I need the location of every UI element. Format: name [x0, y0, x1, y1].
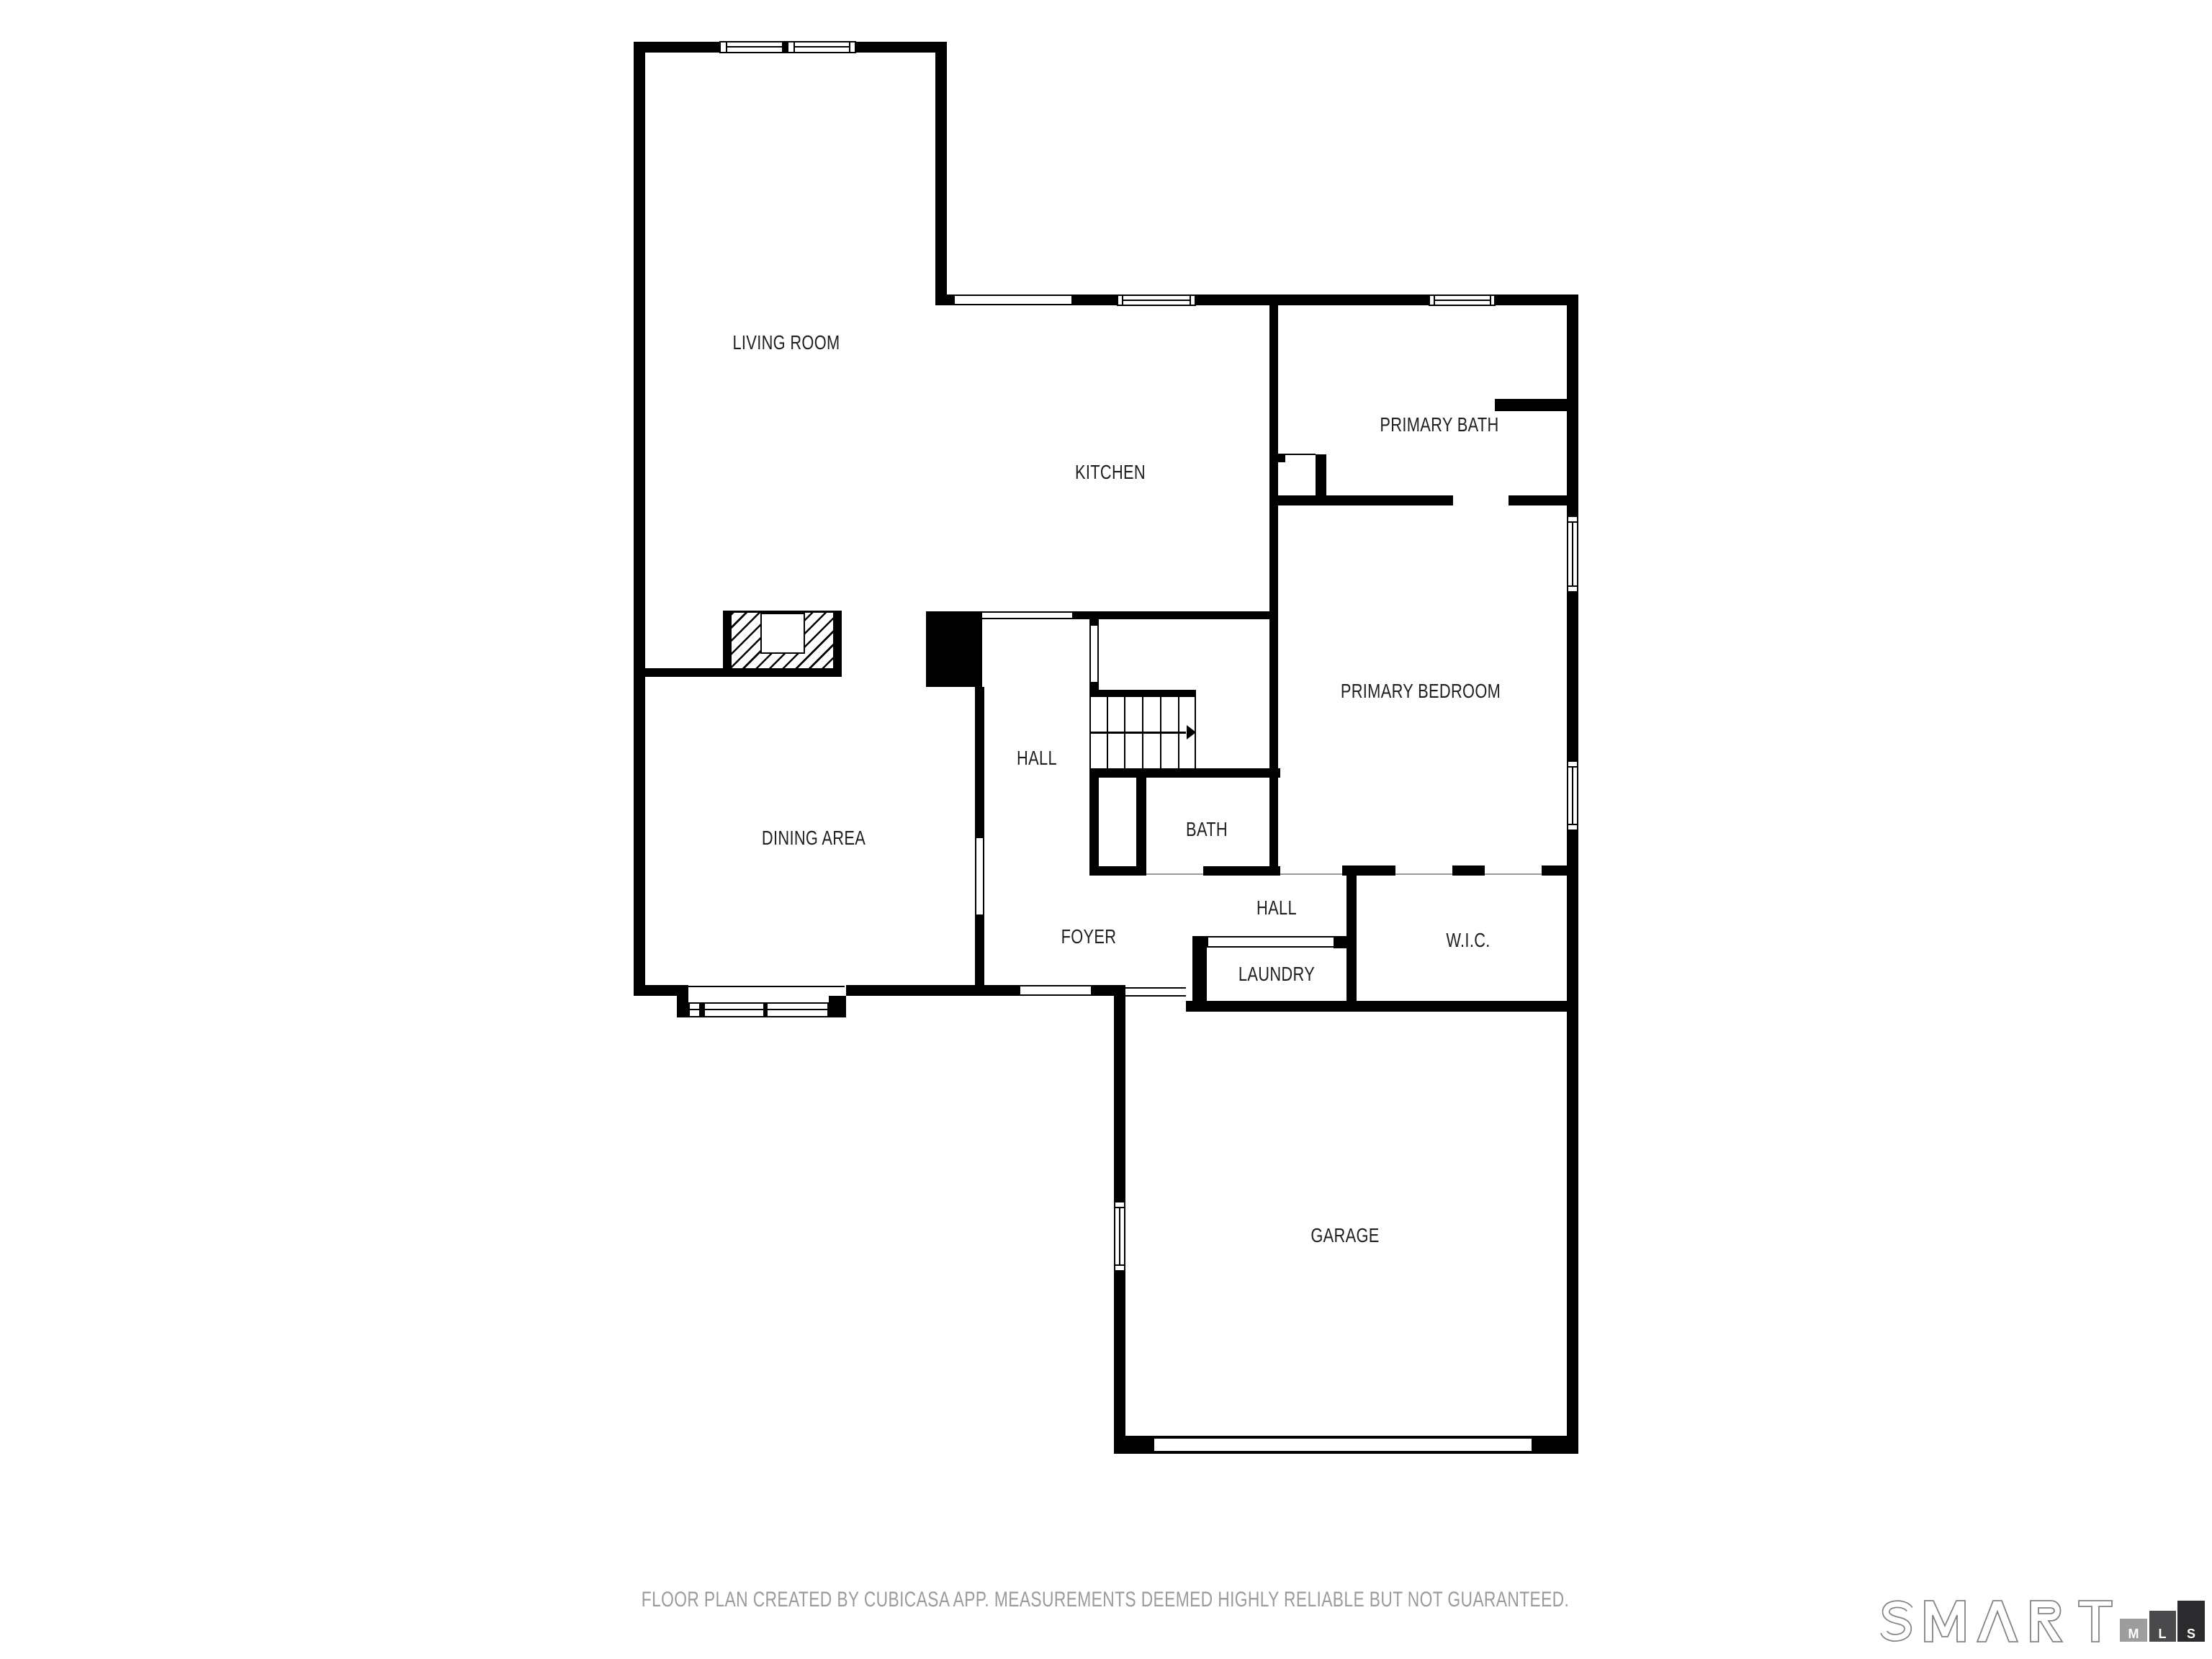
svg-text:L: L [2159, 1627, 2167, 1641]
svg-text:M: M [2128, 1627, 2139, 1641]
svg-text:S: S [2187, 1627, 2195, 1641]
